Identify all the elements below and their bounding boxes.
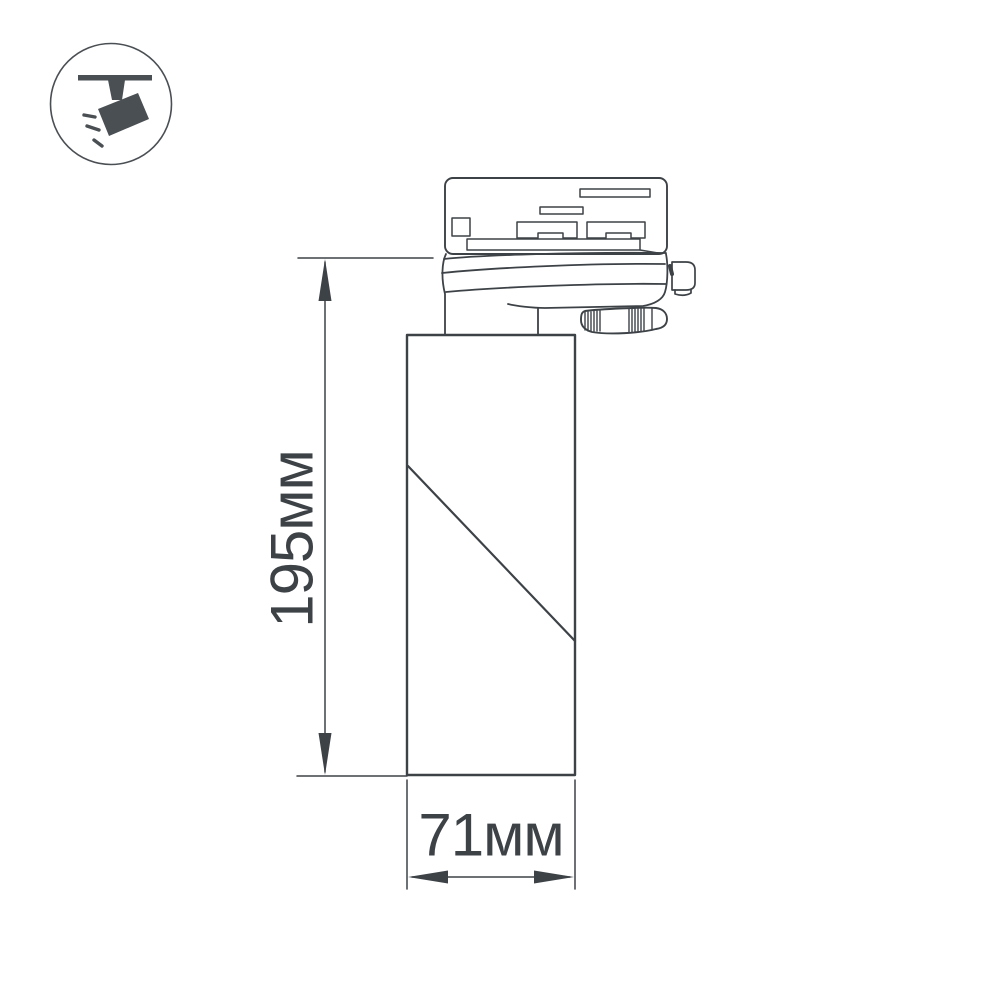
adapter-contact-square [452, 218, 470, 236]
arrow-up [319, 259, 332, 301]
arrow-right [534, 871, 574, 884]
body-seam-line [408, 466, 575, 641]
adjustment-knob [581, 308, 667, 334]
height-dimension-label: 195мм [258, 450, 327, 628]
arrow-left [408, 871, 448, 884]
track-adapter-head [445, 178, 667, 254]
dimension-diagram: 195мм 71мм [0, 0, 1000, 1000]
adapter-contacts [452, 189, 658, 253]
width-dimension-label: 71мм [418, 801, 563, 870]
adapter-latch [670, 262, 695, 295]
fixture-body [407, 335, 575, 775]
arrow-down [319, 733, 332, 775]
